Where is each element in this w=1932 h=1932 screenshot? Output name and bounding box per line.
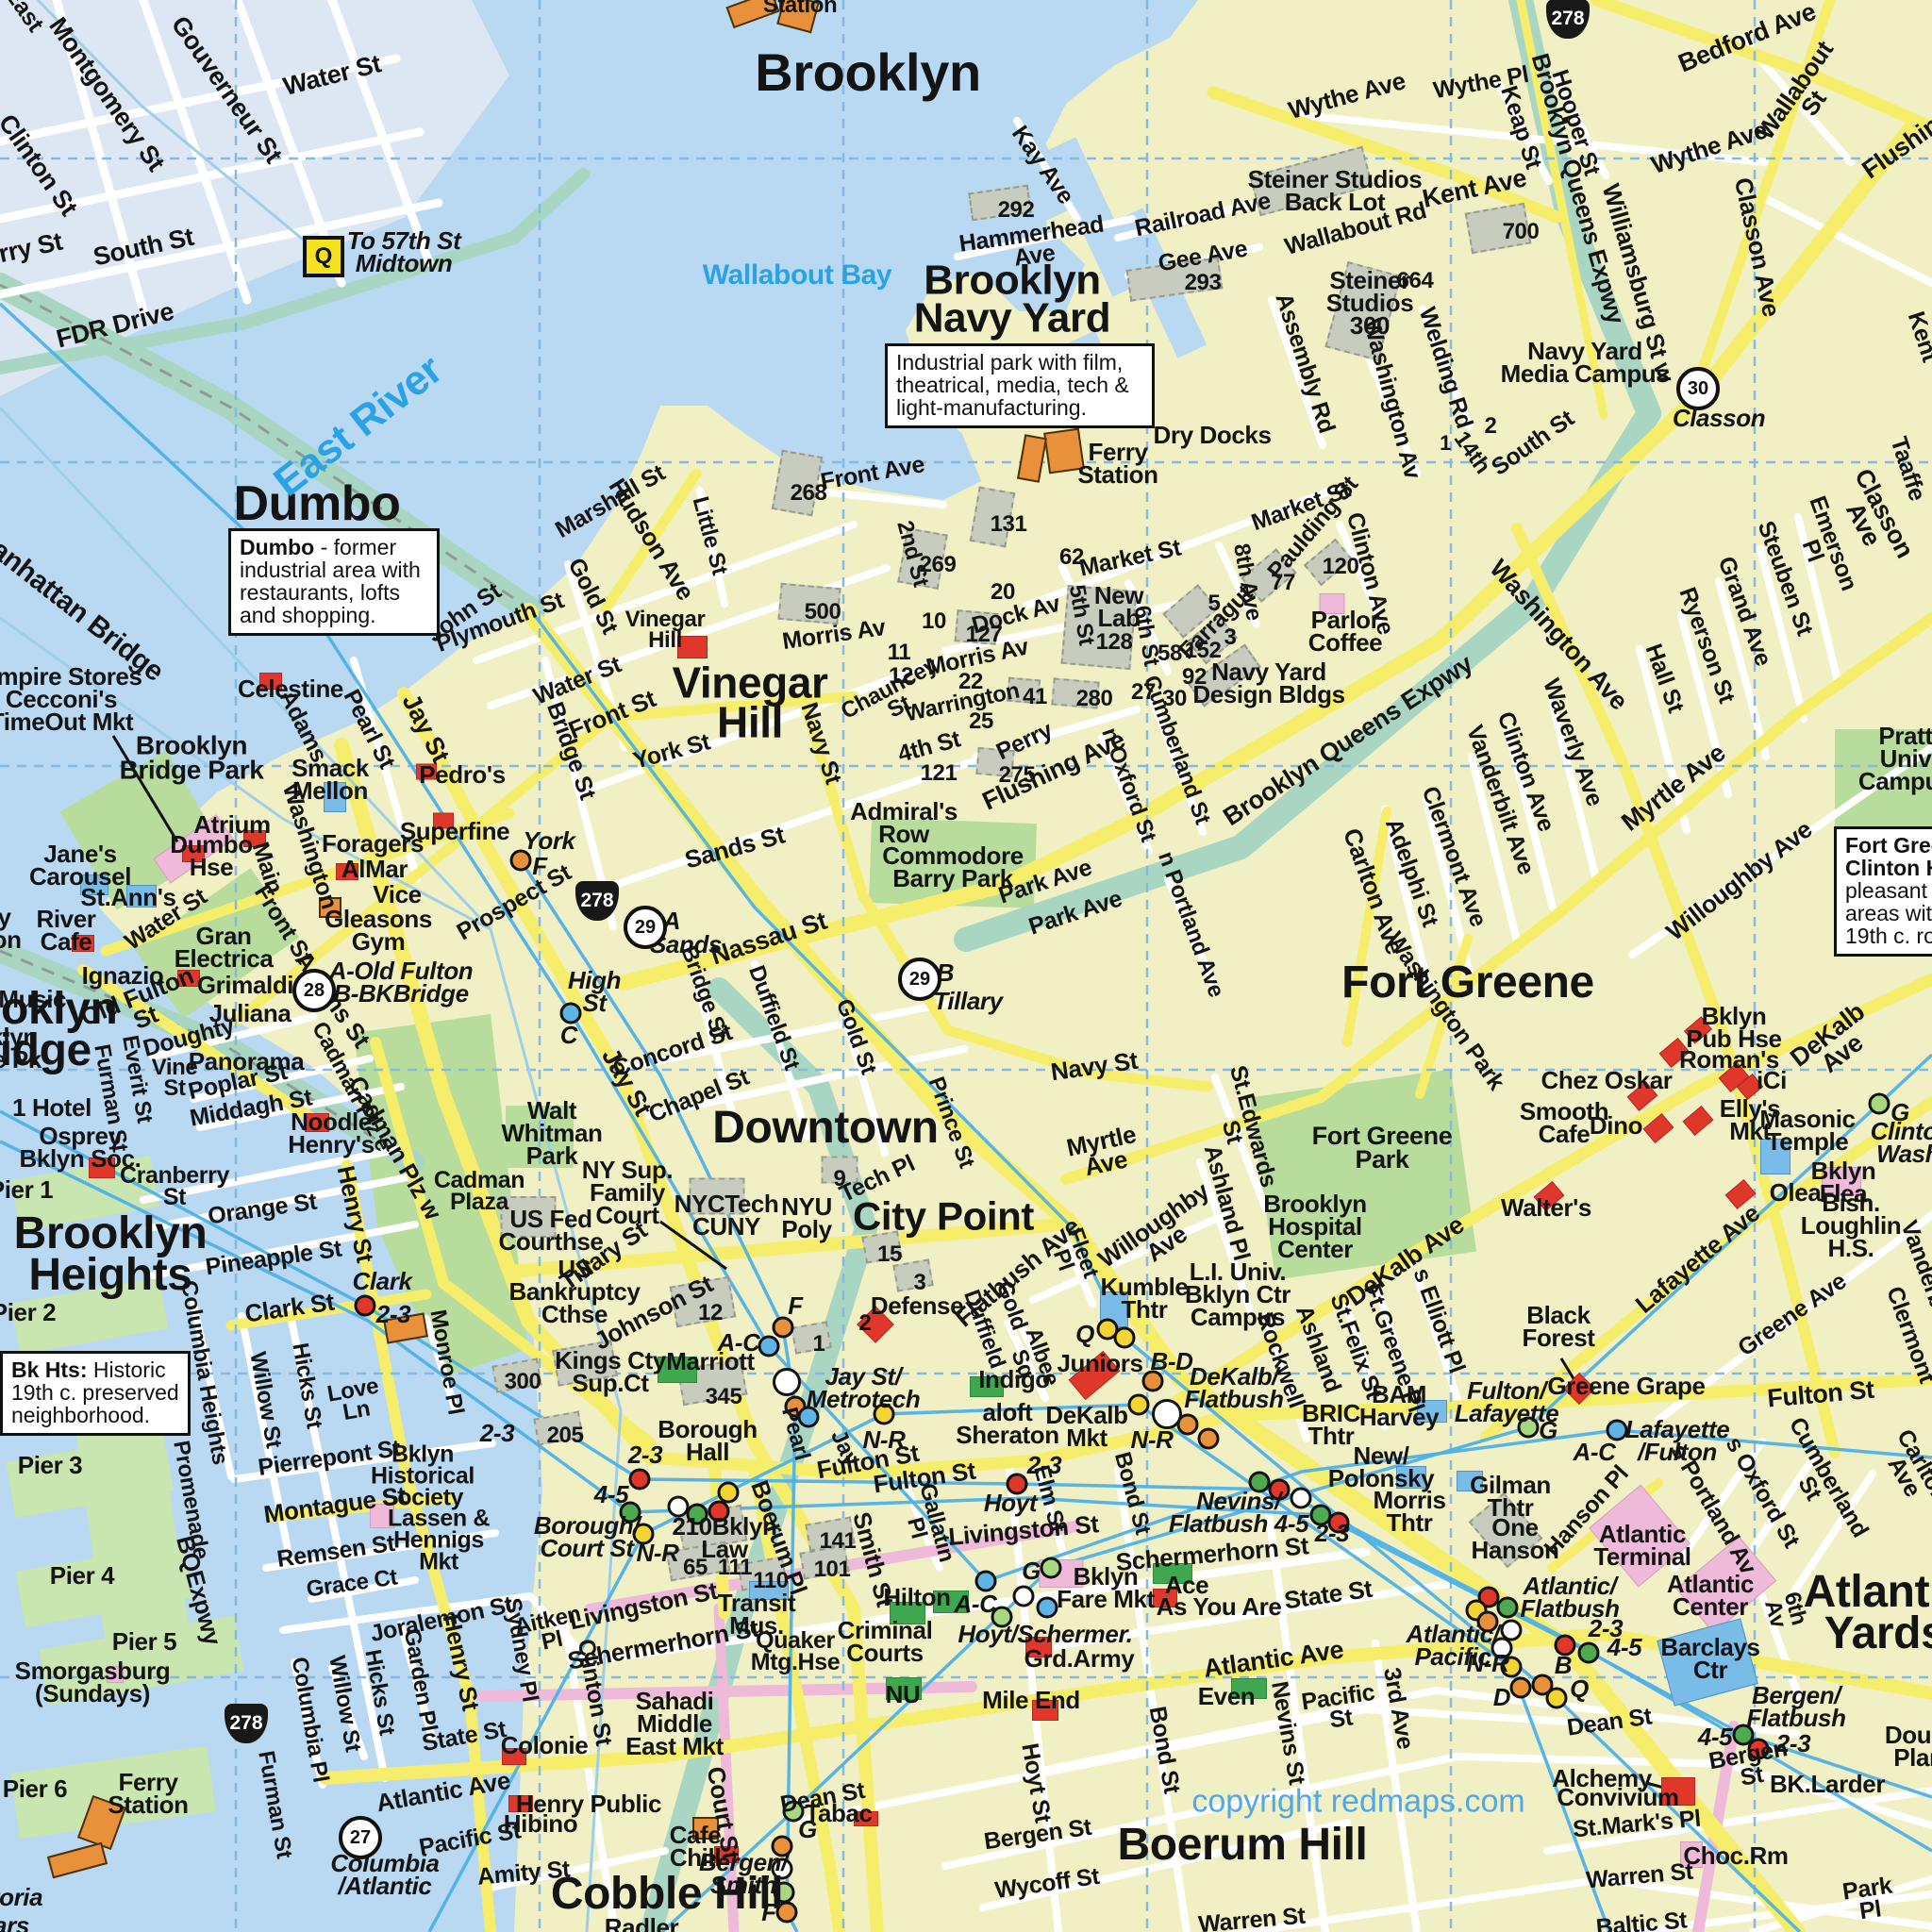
building-red: [677, 636, 708, 658]
building-red: [89, 1158, 115, 1178]
subway-station-marker: [510, 850, 532, 872]
building-blue: [126, 885, 157, 908]
subway-station-marker: [773, 1317, 794, 1339]
building-green: [1231, 1678, 1267, 1699]
circled-station-number: 29: [898, 958, 941, 1001]
map-info-box: Fort Gree Clinton H pleasant r areas wit…: [1834, 826, 1932, 957]
circled-station-number: 30: [1676, 367, 1720, 410]
building-red: [177, 970, 200, 987]
map-info-box: Bk Hts: Historic 19th c. preserved neigh…: [0, 1351, 191, 1436]
subway-station-marker: [758, 1336, 780, 1357]
geometry-layer: [0, 0, 1932, 1932]
building-pink: [370, 1504, 394, 1528]
subway-station-marker: [975, 1571, 997, 1592]
subway-station-marker: [1007, 1474, 1028, 1495]
subway-station-marker: [1501, 1657, 1523, 1678]
subway-station-marker: [991, 1607, 1013, 1628]
subway-station-marker: [773, 1368, 801, 1396]
building-red: [854, 1811, 878, 1826]
subway-station-marker: [783, 1801, 805, 1823]
subway-station-marker: [774, 1882, 795, 1904]
building-red: [502, 1748, 526, 1765]
park-area: [1250, 1069, 1476, 1279]
building-blue: [1417, 1400, 1447, 1423]
circled-station-number: 29: [624, 906, 667, 949]
building-pink: [1680, 1841, 1703, 1868]
building-gray: [1051, 677, 1099, 708]
building-blue: [1396, 1466, 1426, 1489]
building-red: [1661, 1777, 1695, 1806]
building-green: [658, 1357, 697, 1383]
building-green: [1153, 1563, 1192, 1584]
building-red: [72, 935, 94, 952]
building-red: [305, 1113, 329, 1132]
building-gray: [1007, 677, 1041, 705]
subway-station-marker: [1269, 1479, 1291, 1501]
building-red: [1025, 1637, 1052, 1657]
building-pink: [107, 1666, 124, 1683]
building-gray: [1060, 585, 1137, 670]
building-green: [970, 1376, 1004, 1397]
map-canvas: BrooklynBrooklyn Navy YardDumboVinegar H…: [0, 0, 1932, 1932]
building-pink: [1320, 593, 1345, 614]
subway-station-marker: [1249, 1472, 1271, 1493]
subway-station-marker: [1291, 1488, 1312, 1509]
subway-station-marker: [1013, 1586, 1035, 1607]
building-gray: [501, 1196, 557, 1238]
building-red: [416, 764, 437, 780]
building-red: [182, 845, 205, 862]
building-orange: [319, 897, 341, 918]
subway-station-marker: [708, 1501, 730, 1523]
building-blue: [80, 874, 108, 895]
building-blue: [1457, 1471, 1483, 1491]
subway-station-marker: [687, 1504, 708, 1525]
subway-station-marker: [355, 1295, 376, 1317]
building-gray: [975, 747, 1014, 777]
subway-station-marker: [874, 1404, 895, 1425]
building-pink: [1822, 1167, 1861, 1195]
circled-station-number: 28: [292, 969, 336, 1012]
building-blue: [324, 782, 346, 812]
building-orange: [1043, 428, 1085, 475]
subway-station-marker: [1497, 1597, 1519, 1619]
subway-station-marker: [1477, 1611, 1499, 1633]
building-gray: [822, 1157, 858, 1184]
building-red: [714, 1846, 739, 1863]
subway-station-marker: [1142, 1371, 1164, 1392]
subway-station-marker: [1037, 1597, 1058, 1619]
subway-station-marker: [776, 1902, 798, 1924]
building-red: [1153, 1589, 1177, 1607]
subway-station-marker: [1748, 1739, 1770, 1760]
subway-station-marker: [629, 1469, 651, 1491]
building-gray: [690, 1178, 745, 1215]
map-info-box: Industrial park with film, theatrical, m…: [885, 343, 1155, 428]
subway-station-marker: [1518, 1417, 1540, 1439]
subway-station-marker: [1607, 1420, 1628, 1441]
q-train-box: Q: [303, 236, 344, 277]
subway-station-marker: [1041, 1557, 1062, 1579]
building-gray: [955, 609, 999, 645]
subway-station-marker: [1546, 1688, 1568, 1709]
subway-station-marker: [798, 1407, 820, 1428]
building-red: [433, 813, 454, 829]
building-red: [243, 830, 266, 847]
map-info-box: Dumbo - former industrial area with rest…: [228, 528, 440, 636]
building-green: [933, 1591, 969, 1613]
subway-station-marker: [772, 1858, 793, 1880]
subway-station-marker: [1578, 1642, 1600, 1664]
building-blue: [749, 1581, 789, 1600]
building-red: [1032, 1700, 1058, 1721]
building-red: [259, 673, 282, 690]
building-gray: [777, 583, 841, 625]
subway-station-marker: [1177, 1414, 1199, 1436]
subway-station-marker: [1555, 1635, 1576, 1657]
subway-station-marker: [1114, 1327, 1136, 1349]
circled-station-number: 27: [339, 1816, 382, 1859]
subway-station-marker: [1328, 1512, 1350, 1534]
building-green: [890, 1602, 925, 1624]
subway-station-marker: [1869, 1093, 1890, 1115]
subway-station-marker: [633, 1524, 655, 1545]
building-orange: [692, 1817, 719, 1840]
subway-station-marker: [1510, 1677, 1532, 1699]
subway-station-marker: [620, 1502, 641, 1524]
subway-station-marker: [1128, 1394, 1150, 1416]
building-red: [508, 1795, 533, 1812]
subway-station-marker: [772, 1836, 793, 1857]
building-green: [886, 1677, 922, 1700]
subway-station-marker: [1198, 1428, 1220, 1450]
building-blue: [1760, 1139, 1790, 1174]
subway-station-marker: [718, 1482, 740, 1504]
building-red: [336, 863, 358, 880]
subway-station-marker: [560, 1003, 582, 1024]
